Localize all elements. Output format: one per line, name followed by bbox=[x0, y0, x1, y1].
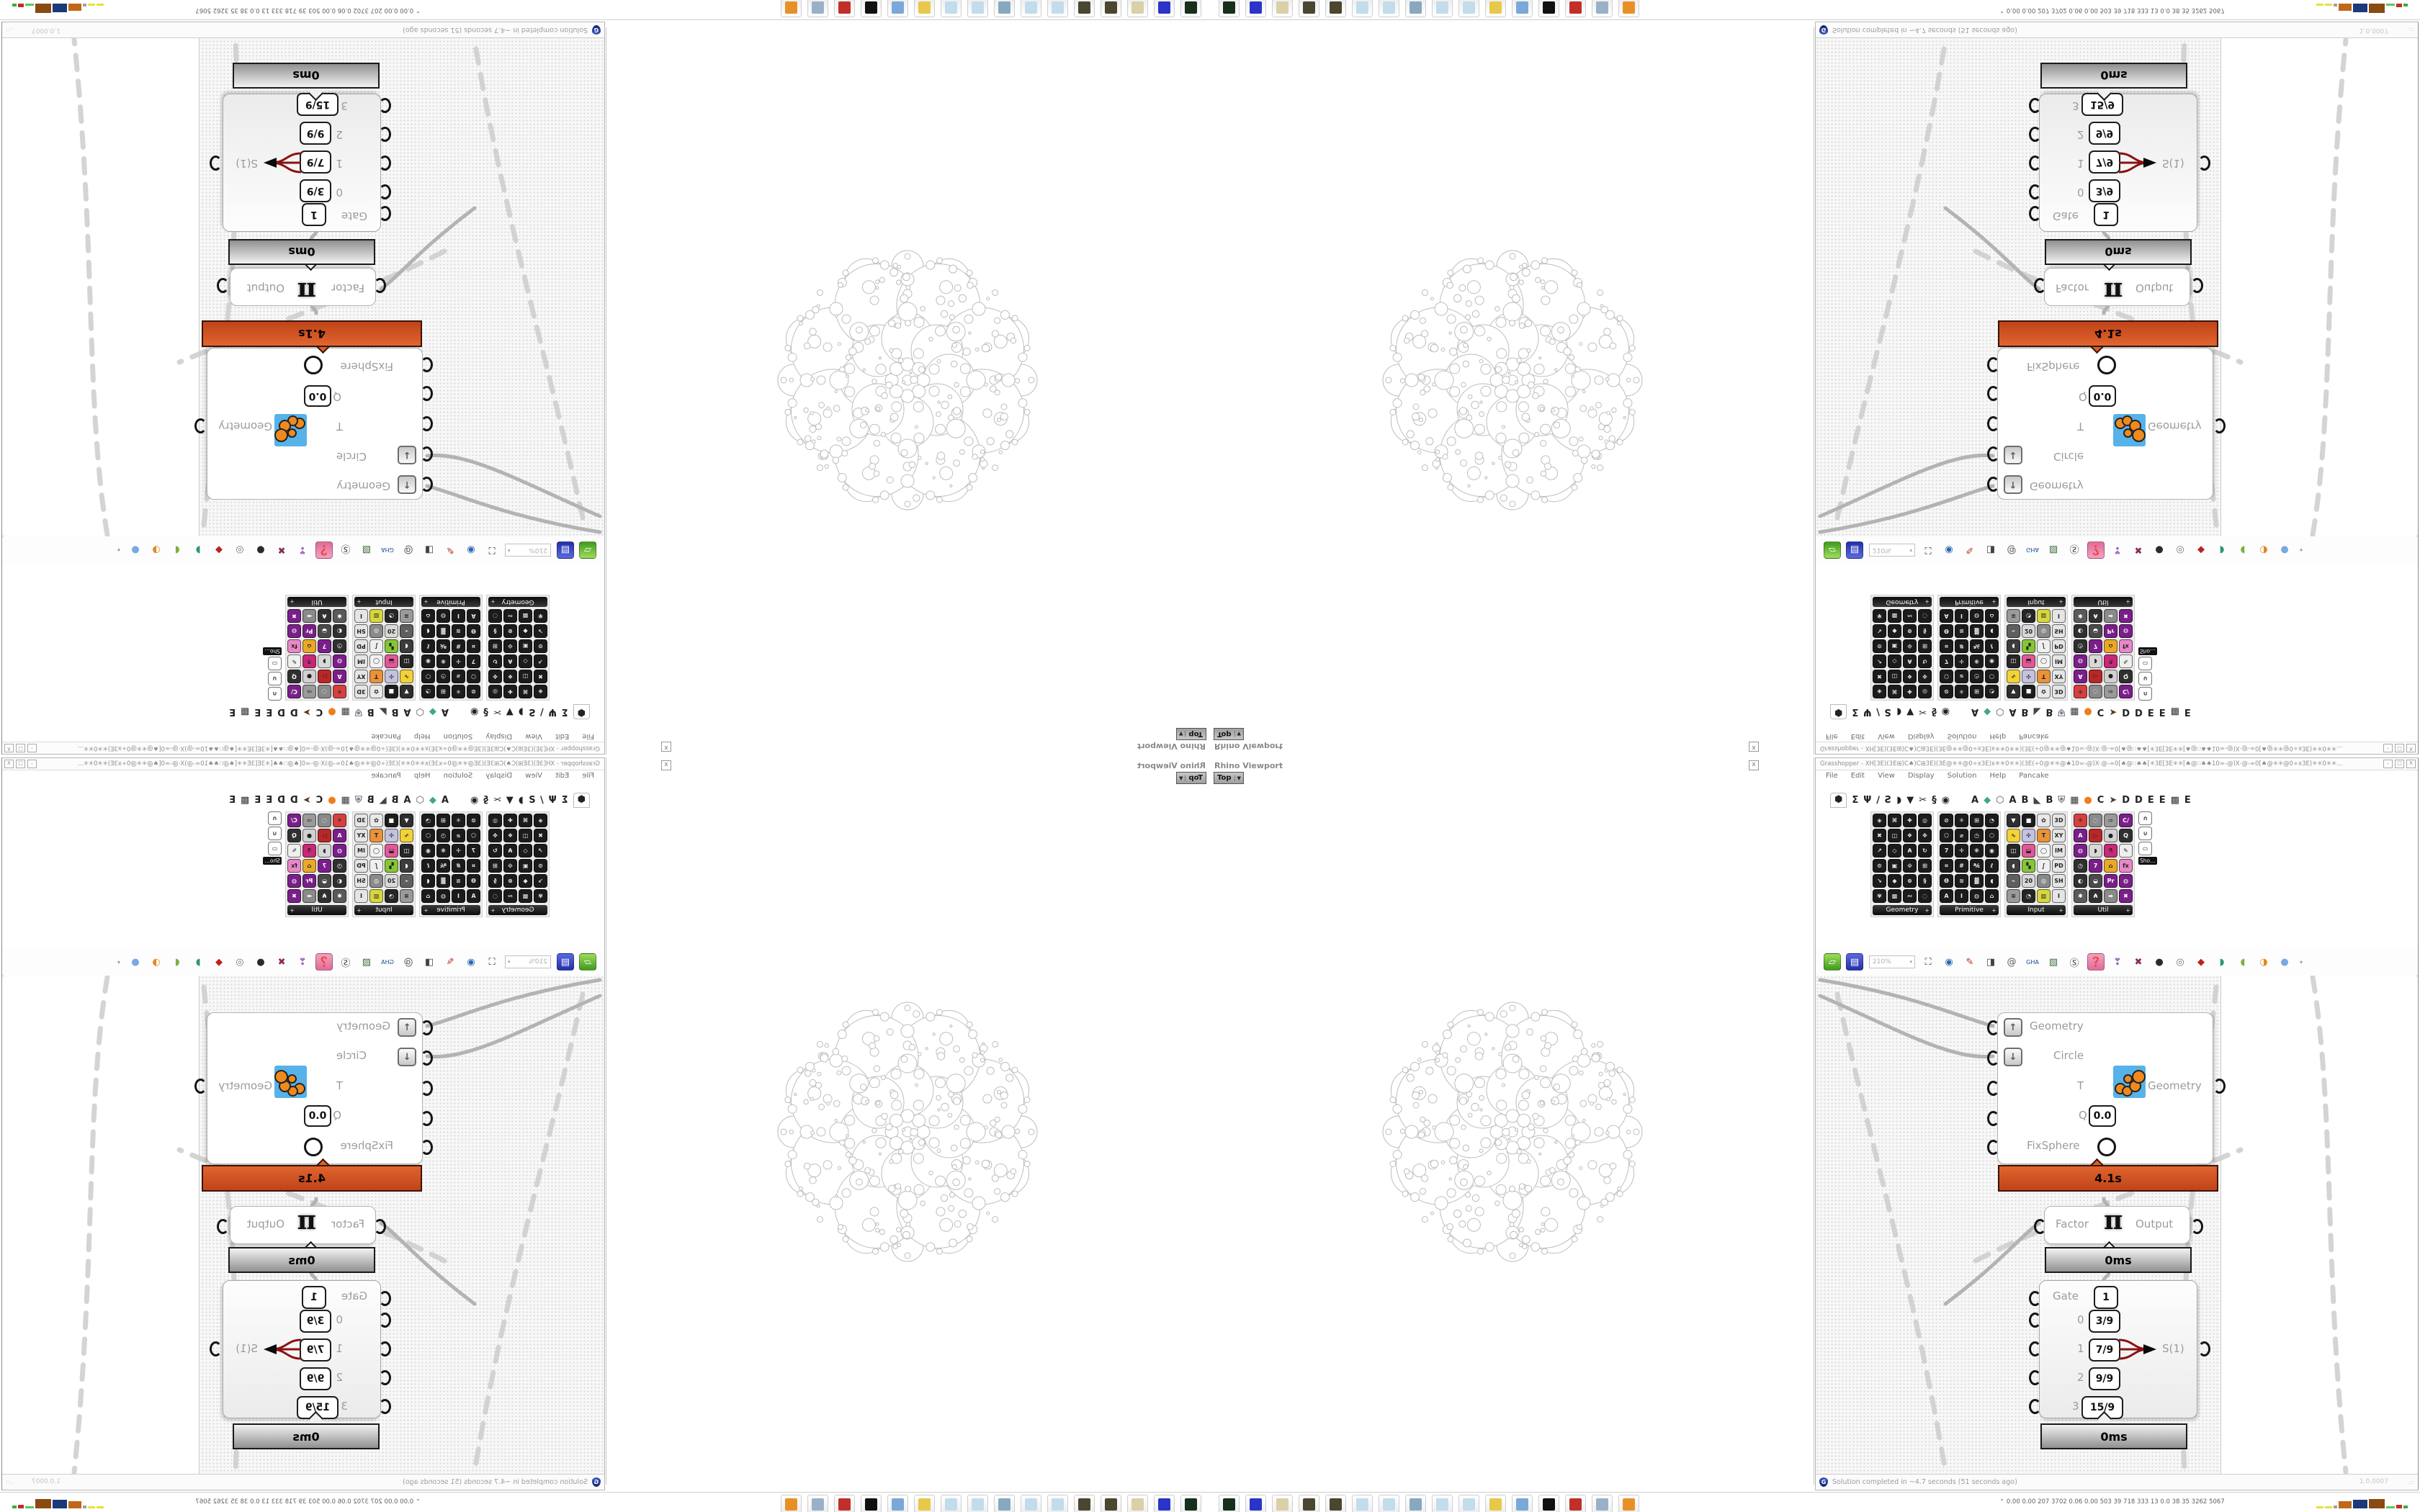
palette-component-icon[interactable]: Ѳ bbox=[467, 624, 480, 638]
ribbon-tab[interactable]: Σ bbox=[562, 795, 568, 806]
ribbon-tab[interactable]: Ƨ bbox=[1885, 707, 1891, 718]
palette-component-icon[interactable]: 3D bbox=[2052, 814, 2066, 827]
palette-component-icon[interactable]: ▣ bbox=[519, 859, 532, 873]
input-grip[interactable] bbox=[379, 184, 391, 199]
ribbon-tab[interactable]: § bbox=[1932, 795, 1937, 806]
s-magnifier-icon[interactable]: Ⓢ bbox=[2066, 954, 2082, 970]
ribbon-tab[interactable]: Σ bbox=[1852, 795, 1858, 806]
palette-component-icon[interactable]: ⚗ bbox=[2104, 844, 2117, 858]
grasshopper-title-bar[interactable]: Grasshopper - XH[3E)(3E⊞)C♠)C⊞3E)(3E@✳✳@… bbox=[2, 742, 604, 754]
taskbar-icon-monitor[interactable] bbox=[994, 0, 1015, 17]
viewport-name-dropdown[interactable]: Top ▼ bbox=[1176, 728, 1206, 740]
ribbon-tab[interactable]: B bbox=[367, 795, 375, 806]
taskbar-icon-red-badge[interactable] bbox=[834, 0, 855, 17]
palette-component-icon[interactable]: ◆ bbox=[519, 874, 532, 888]
palette-component-icon[interactable]: ◫ bbox=[2007, 844, 2020, 858]
palette-component-icon[interactable]: ❋ bbox=[1970, 844, 1984, 858]
ribbon-tab[interactable]: § bbox=[1932, 707, 1937, 718]
grasshopper-canvas[interactable]: ↑ Geometry ↓ Circle T Geometry Q 0.0 Fix… bbox=[4, 976, 604, 1474]
palette-component-icon[interactable]: ⚘ bbox=[333, 814, 346, 827]
taskbar-icon-computer-blue[interactable] bbox=[887, 1495, 908, 1512]
ribbon-tab[interactable]: E bbox=[2184, 707, 2191, 718]
palette-component-icon[interactable]: ❖ bbox=[503, 829, 517, 842]
palette-component-icon[interactable]: ✱ bbox=[2074, 889, 2087, 903]
palette-component-icon[interactable]: ⊞ bbox=[1970, 814, 1984, 827]
palette-component-icon[interactable]: ◯ bbox=[369, 654, 383, 668]
taskbar-icon-notepad-3[interactable] bbox=[1432, 1495, 1453, 1512]
palette-component-icon[interactable]: ◌ bbox=[1918, 889, 1932, 903]
sketch-pen-icon[interactable]: ✎ bbox=[442, 954, 458, 970]
preview-wire-icon[interactable]: ◎ bbox=[232, 542, 248, 558]
palette-group-heading[interactable]: Input+ bbox=[354, 905, 413, 915]
palette-component-icon[interactable]: ≋ bbox=[1955, 624, 1968, 638]
palette-component-icon[interactable]: ✿ bbox=[369, 814, 383, 827]
palette-component-icon[interactable]: ⚘ bbox=[2074, 814, 2087, 827]
palette-component-icon[interactable]: ▚ bbox=[385, 859, 398, 873]
input-grip[interactable] bbox=[1987, 446, 1999, 462]
palette-component-icon[interactable]: ▷ bbox=[2089, 829, 2102, 842]
ribbon-tab[interactable]: Ψ bbox=[1863, 707, 1871, 718]
palette-component-icon[interactable]: ✾ bbox=[1873, 609, 1886, 623]
balloon-icon[interactable]: ❣ bbox=[295, 954, 310, 970]
palette-component-icon[interactable]: ⚘ bbox=[333, 685, 346, 698]
taskbar-icon-browser-orange[interactable] bbox=[781, 0, 802, 17]
palette-component-icon[interactable]: ◷ bbox=[2074, 639, 2087, 653]
palette-component-icon[interactable]: ● bbox=[2104, 829, 2117, 842]
taskbar-icon-red-badge[interactable] bbox=[1565, 1495, 1586, 1512]
viewport-name-dropdown[interactable]: Top ▼ bbox=[1214, 728, 1244, 740]
palette-component-icon[interactable]: ✣ bbox=[2022, 670, 2035, 683]
palette-component-icon[interactable]: ⊘ bbox=[1940, 814, 1953, 827]
palette-component-icon[interactable]: ∾ bbox=[503, 889, 517, 903]
viewport-name-dropdown[interactable]: Top ▼ bbox=[1176, 772, 1206, 784]
taskbar-icon-coin-2[interactable] bbox=[1325, 0, 1346, 17]
palette-component-icon[interactable]: ≡ bbox=[400, 889, 413, 903]
palette-component-icon[interactable]: ∿ bbox=[400, 829, 413, 842]
row1-value[interactable]: 7/9 bbox=[300, 150, 331, 174]
palette-component-icon[interactable]: ▓ bbox=[1970, 624, 1984, 638]
taskbar-icon-arrows-bw[interactable] bbox=[861, 1495, 882, 1512]
palette-component-icon[interactable]: ✿ bbox=[369, 685, 383, 698]
gate-value-field[interactable]: 1 bbox=[2094, 203, 2118, 226]
palette-component-icon[interactable]: ◐ bbox=[333, 874, 346, 888]
palette-component-icon[interactable]: ▥ bbox=[369, 609, 383, 623]
taskbar-icon-notepad-1[interactable] bbox=[1047, 1495, 1068, 1512]
preview-dark-icon[interactable]: ● bbox=[2151, 542, 2167, 558]
menu-solution[interactable]: Solution bbox=[1948, 772, 1977, 780]
palette-component-icon[interactable]: ◎ bbox=[1918, 685, 1932, 698]
ribbon-tab[interactable]: ▩ bbox=[241, 795, 249, 806]
ribbon-tab[interactable]: ⬡ bbox=[416, 707, 424, 718]
palette-component-icon[interactable]: ✥ bbox=[488, 829, 502, 842]
ribbon-tab[interactable]: ✂ bbox=[1919, 795, 1927, 806]
palette-component-icon[interactable]: ◎ bbox=[1918, 814, 1932, 827]
palette-component-icon[interactable]: ◒ bbox=[318, 624, 331, 638]
palette-component-icon[interactable]: ◎ bbox=[488, 814, 502, 827]
palette-component-icon[interactable]: ⬓ bbox=[385, 654, 398, 668]
gate-sums-component[interactable]: Gate 1 0 3/9 1 7/9 S(1) 2 9/9 3 bbox=[223, 1280, 381, 1418]
taskbar-icon-notepad-3[interactable] bbox=[967, 0, 988, 17]
palette-component-icon[interactable]: ◷ bbox=[333, 859, 346, 873]
palette-component-icon[interactable]: ∿ bbox=[400, 670, 413, 683]
input-grip[interactable] bbox=[421, 357, 433, 372]
ribbon-tab[interactable]: ▼ bbox=[1906, 795, 1914, 806]
disable-cross-icon[interactable]: ✖ bbox=[2130, 954, 2146, 970]
palette-component-icon[interactable]: XY bbox=[2052, 670, 2066, 683]
palette-component-icon[interactable]: ◔ bbox=[2022, 889, 2035, 903]
palette-component-icon[interactable]: ∫ bbox=[369, 639, 383, 653]
taskbar-icon-terminal[interactable] bbox=[1180, 1495, 1201, 1512]
menu-edit[interactable]: Edit bbox=[555, 772, 569, 780]
menu-pancake[interactable]: Pancake bbox=[2019, 772, 2048, 780]
palette-component-icon[interactable]: ✖ bbox=[2119, 609, 2133, 623]
row0-value[interactable]: 3/9 bbox=[300, 1310, 331, 1333]
palette-component-icon[interactable]: A bbox=[2074, 670, 2087, 683]
palette-component-icon[interactable]: ◗ bbox=[318, 654, 331, 668]
palette-component-icon[interactable]: ❋ bbox=[436, 844, 450, 858]
taskbar-icon-computer-blue[interactable] bbox=[1512, 0, 1533, 17]
palette-group-heading[interactable]: Primitive+ bbox=[421, 597, 480, 607]
gate-sums-component[interactable]: Gate 1 0 3/9 1 7/9 S(1) 2 9/9 3 bbox=[2039, 1280, 2197, 1418]
palette-component-icon[interactable]: Ѳ bbox=[1940, 874, 1953, 888]
palette-group-heading[interactable]: Geometry+ bbox=[1873, 597, 1932, 607]
gem-green-icon[interactable]: ◗ bbox=[190, 542, 206, 558]
palette-component-icon[interactable]: ◔ bbox=[1985, 814, 1999, 827]
palette-component-icon[interactable]: ▷ bbox=[318, 829, 331, 842]
palette-component-icon[interactable]: ⇨ bbox=[302, 814, 316, 827]
ribbon-tab[interactable]: ◗ bbox=[519, 707, 524, 718]
palette-group-heading[interactable]: Util+ bbox=[287, 905, 346, 915]
ribbon-tab[interactable]: D bbox=[277, 707, 285, 718]
input-grip[interactable] bbox=[2029, 1313, 2041, 1328]
palette-component-icon[interactable]: ◫ bbox=[400, 654, 413, 668]
input-grip[interactable] bbox=[421, 416, 433, 431]
factor-pi-component[interactable]: Factor π Output bbox=[230, 268, 376, 306]
palette-component-icon[interactable]: ◍ bbox=[436, 609, 450, 623]
ribbon-tab[interactable]: D bbox=[277, 795, 285, 806]
palette-component-icon[interactable]: Q bbox=[287, 670, 301, 683]
palette-component-icon[interactable]: PD bbox=[2052, 859, 2066, 873]
menu-help[interactable]: Help bbox=[414, 732, 431, 740]
ribbon-tab[interactable]: ✂ bbox=[493, 707, 501, 718]
input-grip[interactable] bbox=[421, 1050, 433, 1066]
palette-component-icon[interactable]: ◇ bbox=[519, 844, 532, 858]
gem-green-icon[interactable]: ◗ bbox=[190, 954, 206, 970]
palette-component-icon[interactable]: ↘ bbox=[1873, 874, 1886, 888]
gem-green-icon[interactable]: ◗ bbox=[2214, 542, 2230, 558]
taskbar-icon-floppy-64[interactable] bbox=[1245, 0, 1266, 17]
taskbar-icon-terminal[interactable] bbox=[1219, 1495, 1240, 1512]
palette-component-icon[interactable]: 20 bbox=[385, 874, 398, 888]
palette-component-icon[interactable]: ◎ bbox=[488, 685, 502, 698]
palette-component-icon[interactable]: ⊗ bbox=[1903, 874, 1917, 888]
palette-component-icon[interactable]: ❖ bbox=[1903, 670, 1917, 683]
input-grip[interactable] bbox=[421, 386, 433, 401]
palette-component-icon[interactable]: 20 bbox=[2022, 624, 2035, 638]
q-value-field[interactable]: 0.0 bbox=[304, 385, 331, 407]
ribbon-tab[interactable]: E bbox=[266, 795, 272, 806]
palette-component-icon[interactable]: ● bbox=[302, 829, 316, 842]
palette-component-icon[interactable]: ▭ bbox=[268, 657, 282, 670]
palette-component-icon[interactable]: ◇ bbox=[519, 654, 532, 668]
taskbar-icon-script-scroll[interactable] bbox=[1272, 0, 1293, 17]
palette-component-icon[interactable]: ◒ bbox=[2089, 874, 2102, 888]
palette-component-icon[interactable]: IM bbox=[354, 844, 368, 858]
save-file-icon[interactable]: ▤ bbox=[557, 541, 574, 559]
palette-component-icon[interactable]: ⌘ bbox=[519, 685, 532, 698]
palette-component-icon[interactable]: ⌂ bbox=[302, 639, 316, 653]
gha-loader-icon[interactable]: GHA bbox=[380, 954, 395, 970]
input-grip[interactable] bbox=[421, 1140, 433, 1155]
input-grip[interactable] bbox=[1987, 1140, 1999, 1155]
ribbon-tab[interactable]: D bbox=[2135, 707, 2143, 718]
output-grip[interactable] bbox=[2191, 1219, 2203, 1234]
input-grip[interactable] bbox=[1987, 1020, 1999, 1035]
palette-component-icon[interactable]: ◖ bbox=[1985, 874, 1999, 888]
palette-component-icon[interactable]: ◯ bbox=[2037, 844, 2051, 858]
ribbon-tab[interactable]: C bbox=[316, 707, 323, 718]
palette-component-icon[interactable]: ≋ bbox=[452, 624, 465, 638]
palette-component-icon[interactable]: 7 bbox=[1940, 654, 1953, 668]
palette-component-icon[interactable]: ⌁ bbox=[2007, 624, 2020, 638]
palette-component-icon[interactable]: Ⅰ bbox=[2052, 609, 2066, 623]
taskbar-icon-terminal[interactable] bbox=[1180, 0, 1201, 17]
palette-component-icon[interactable]: ◇ bbox=[1888, 654, 1901, 668]
palette-component-icon[interactable]: ▩ bbox=[519, 889, 532, 903]
grasshopper-canvas[interactable]: ↑ Geometry ↓ Circle T Geometry Q 0.0 Fix… bbox=[4, 38, 604, 536]
ribbon-tab[interactable]: Ψ bbox=[549, 795, 557, 806]
palette-component-icon[interactable]: C/ bbox=[287, 814, 301, 827]
palette-component-icon[interactable]: ⌀ bbox=[1955, 670, 1968, 683]
input-grip[interactable] bbox=[379, 1291, 391, 1306]
palette-component-icon[interactable]: ⌁ bbox=[400, 624, 413, 638]
palette-component-icon[interactable]: 3D bbox=[2052, 685, 2066, 698]
taskbar-icon-notepad-2[interactable] bbox=[1379, 1495, 1399, 1512]
palette-component-icon[interactable]: ◗ bbox=[318, 844, 331, 858]
taskbar-icon-script-scroll[interactable] bbox=[1272, 1495, 1293, 1512]
fixsphere-component[interactable]: ↑ Geometry ↓ Circle T Geometry Q 0.0 Fix… bbox=[207, 1012, 423, 1164]
palette-component-icon[interactable]: ◉ bbox=[1985, 654, 1999, 668]
palette-component-icon[interactable]: PD bbox=[354, 859, 368, 873]
input-grip[interactable] bbox=[421, 446, 433, 462]
palette-component-icon[interactable]: ✛ bbox=[1955, 844, 1968, 858]
palette-component-icon[interactable]: ◐ bbox=[2074, 874, 2087, 888]
palette-component-icon[interactable]: ↘ bbox=[534, 624, 547, 638]
taskbar-icon-computer-blue[interactable] bbox=[1512, 1495, 1533, 1512]
gem-red-icon[interactable]: ◆ bbox=[2193, 954, 2209, 970]
palette-component-icon[interactable]: ▭ bbox=[2138, 657, 2152, 670]
palette-component-icon[interactable]: ✿ bbox=[2037, 685, 2051, 698]
maximize-button[interactable]: □ bbox=[16, 744, 25, 752]
input-grip[interactable] bbox=[379, 1370, 391, 1385]
s-magnifier-icon[interactable]: Ⓢ bbox=[338, 542, 354, 558]
ribbon-tab[interactable]: Σ bbox=[1852, 707, 1858, 718]
palette-component-icon[interactable]: ◔ bbox=[385, 889, 398, 903]
palette-component-icon[interactable]: 7 bbox=[2089, 639, 2102, 653]
palette-component-icon[interactable]: ℀ bbox=[436, 639, 450, 653]
palette-component-icon[interactable]: ⌗ bbox=[467, 639, 480, 653]
taskbar-icon-script-scroll[interactable] bbox=[1127, 1495, 1148, 1512]
palette-component-icon[interactable]: ✳ bbox=[452, 685, 465, 698]
gem-leaf-icon[interactable]: ◖ bbox=[2235, 542, 2251, 558]
palette-component-icon[interactable]: A bbox=[1940, 889, 1953, 903]
ribbon-tab[interactable]: § bbox=[483, 795, 488, 806]
palette-component-icon[interactable]: Ⅰ bbox=[1955, 889, 1968, 903]
menu-help[interactable]: Help bbox=[1989, 732, 2006, 740]
palette-component-icon[interactable]: ∪ bbox=[2138, 672, 2152, 685]
toolbar-more-arrow[interactable]: ▾ bbox=[2300, 959, 2303, 966]
ribbon-tab[interactable]: ∕ bbox=[540, 795, 544, 806]
palette-component-icon[interactable]: ▩ bbox=[1888, 609, 1901, 623]
palette-component-icon[interactable]: Q bbox=[2119, 670, 2133, 683]
ribbon-tab[interactable]: E bbox=[254, 707, 261, 718]
palette-component-icon[interactable]: 3D bbox=[354, 814, 368, 827]
q-value-field[interactable]: 0.0 bbox=[304, 1105, 331, 1127]
output-grip[interactable] bbox=[194, 1079, 207, 1094]
taskbar-icon-notepad-2[interactable] bbox=[1379, 0, 1399, 17]
gate-value-field[interactable]: 1 bbox=[302, 1286, 326, 1309]
input-grip[interactable] bbox=[1987, 1081, 1999, 1096]
palette-component-icon[interactable]: ₳ bbox=[503, 654, 517, 668]
ribbon-tab[interactable]: ⬢ bbox=[1830, 793, 1847, 808]
ribbon-tab[interactable]: ∕ bbox=[1876, 795, 1880, 806]
palette-component-icon[interactable]: ◫ bbox=[2007, 654, 2020, 668]
rhino-close-button[interactable]: x bbox=[661, 742, 671, 752]
taskbar-icon-coin-2[interactable] bbox=[1325, 1495, 1346, 1512]
palette-component-icon[interactable]: ◍ bbox=[436, 889, 450, 903]
palette-component-icon[interactable]: ◍ bbox=[287, 624, 301, 638]
palette-component-icon[interactable]: ⬡ bbox=[1985, 670, 1999, 683]
ribbon-tab[interactable]: A bbox=[2009, 795, 2016, 806]
palette-component-icon[interactable]: ◍ bbox=[2074, 654, 2087, 668]
palette-component-icon[interactable]: ⬠ bbox=[467, 670, 480, 683]
input-grip[interactable] bbox=[379, 1313, 391, 1328]
palette-component-icon[interactable]: T bbox=[2037, 829, 2051, 842]
palette-component-icon[interactable]: ◒ bbox=[318, 874, 331, 888]
taskbar-icon-calculator[interactable] bbox=[807, 1495, 828, 1512]
palette-component-icon[interactable]: Ⅰ bbox=[2052, 889, 2066, 903]
palette-component-icon[interactable]: ◫ bbox=[519, 670, 532, 683]
ribbon-tab[interactable]: ◣ bbox=[2033, 795, 2040, 806]
pink-box-icon[interactable]: ❓ bbox=[315, 953, 333, 971]
ribbon-tab[interactable]: ▦ bbox=[2070, 795, 2079, 806]
row2-value[interactable]: 9/9 bbox=[2089, 122, 2120, 145]
q-value-field[interactable]: 0.0 bbox=[2089, 385, 2116, 407]
palette-component-icon[interactable]: SH bbox=[2052, 624, 2066, 638]
palette-component-icon[interactable]: ✣ bbox=[385, 829, 398, 842]
menu-file[interactable]: File bbox=[582, 772, 594, 780]
rhino-close-button[interactable]: x bbox=[1749, 742, 1759, 752]
map-search-icon[interactable]: ▧ bbox=[2045, 542, 2061, 558]
minimize-button[interactable]: – bbox=[2383, 744, 2393, 752]
palette-component-icon[interactable]: 7 bbox=[2089, 859, 2102, 873]
palette-component-icon[interactable]: ⊙ bbox=[534, 639, 547, 653]
palette-group-heading[interactable]: Primitive+ bbox=[1940, 905, 1999, 915]
palette-component-icon[interactable]: Pr bbox=[2104, 624, 2117, 638]
gem-red-icon[interactable]: ◆ bbox=[211, 954, 227, 970]
palette-component-icon[interactable]: ◖ bbox=[1985, 624, 1999, 638]
palette-component-icon[interactable]: ⬓ bbox=[385, 844, 398, 858]
ribbon-tab[interactable]: E bbox=[266, 707, 272, 718]
preview-dark-icon[interactable]: ● bbox=[2151, 954, 2167, 970]
output-grip[interactable] bbox=[210, 156, 222, 171]
menu-file[interactable]: File bbox=[582, 732, 594, 740]
grasshopper-canvas[interactable]: ↑ Geometry ↓ Circle T Geometry Q 0.0 Fix… bbox=[1816, 38, 2416, 536]
palette-component-icon[interactable]: 20 bbox=[2022, 874, 2035, 888]
palette-component-icon[interactable]: ℀ bbox=[1970, 859, 1984, 873]
palette-component-icon[interactable]: ↘ bbox=[534, 874, 547, 888]
palette-component-icon[interactable]: ∫ bbox=[2037, 859, 2051, 873]
close-button[interactable]: X bbox=[2406, 760, 2416, 768]
menu-help[interactable]: Help bbox=[414, 772, 431, 780]
ribbon-tab[interactable]: Ƨ bbox=[529, 795, 535, 806]
palette-component-icon[interactable]: ◖ bbox=[2007, 859, 2020, 873]
output-grip[interactable] bbox=[217, 1219, 229, 1234]
gem-orange-icon[interactable]: ◑ bbox=[2256, 542, 2272, 558]
ribbon-tab[interactable]: ◆ bbox=[1984, 795, 1991, 806]
gem-orange-icon[interactable]: ◑ bbox=[2256, 954, 2272, 970]
palette-component-icon[interactable]: ∩ bbox=[2138, 687, 2152, 701]
output-grip[interactable] bbox=[217, 278, 229, 293]
palette-component-icon[interactable]: § bbox=[1918, 874, 1932, 888]
palette-component-icon[interactable]: ⌂ bbox=[1985, 609, 1999, 623]
maximize-button[interactable]: □ bbox=[2395, 744, 2404, 752]
palette-component-icon[interactable]: ℓ bbox=[1985, 639, 1999, 653]
taskbar-icon-monitor[interactable] bbox=[1405, 1495, 1426, 1512]
palette-component-icon[interactable]: ✣ bbox=[2022, 829, 2035, 842]
factor-pi-component[interactable]: Factor π Output bbox=[2044, 1206, 2190, 1244]
palette-component-icon[interactable]: ▣ bbox=[519, 639, 532, 653]
ribbon-tab[interactable]: ▼ bbox=[506, 707, 514, 718]
ribbon-tab[interactable]: B bbox=[367, 707, 375, 718]
palette-component-icon[interactable]: ◔ bbox=[421, 685, 435, 698]
gha-loader-icon[interactable]: GHA bbox=[380, 542, 395, 558]
palette-component-icon[interactable]: ⌗ bbox=[1940, 639, 1953, 653]
ribbon-tab[interactable]: ⬢ bbox=[573, 705, 590, 720]
gem-blue-icon[interactable]: ● bbox=[127, 542, 143, 558]
palette-component-icon[interactable]: ✎ bbox=[287, 654, 301, 668]
taskbar-icon-folder-yellow[interactable] bbox=[1485, 1495, 1506, 1512]
ribbon-tab[interactable]: ● bbox=[2084, 795, 2092, 806]
palette-component-icon[interactable]: ∾ bbox=[1903, 609, 1917, 623]
palette-component-icon[interactable]: ✖ bbox=[1873, 829, 1886, 842]
palette-component-icon[interactable]: Ѳ bbox=[467, 874, 480, 888]
palette-component-icon[interactable]: ■ bbox=[2022, 814, 2035, 827]
rhino-close-button[interactable]: x bbox=[661, 760, 671, 770]
down-arrow-button[interactable]: ↓ bbox=[398, 446, 416, 464]
taskbar-icon-notepad-4[interactable] bbox=[1458, 0, 1479, 17]
input-grip[interactable] bbox=[379, 127, 391, 142]
palette-component-icon[interactable]: ∾ bbox=[1903, 889, 1917, 903]
palette-component-icon[interactable]: ❖ bbox=[1903, 829, 1917, 842]
palette-component-icon[interactable]: ⊘ bbox=[467, 814, 480, 827]
palette-component-icon[interactable]: ⇨ bbox=[2104, 814, 2117, 827]
palette-group-heading[interactable]: Util+ bbox=[2074, 597, 2133, 607]
palette-component-icon[interactable]: ↗ bbox=[534, 844, 547, 858]
menu-view[interactable]: View bbox=[525, 772, 542, 780]
ribbon-tab[interactable]: Σ bbox=[562, 707, 568, 718]
preview-eye-icon[interactable]: ◉ bbox=[463, 954, 479, 970]
q-value-field[interactable]: 0.0 bbox=[2089, 1105, 2116, 1127]
palette-component-icon[interactable]: ⟐ bbox=[503, 639, 517, 653]
ribbon-tab[interactable]: B bbox=[392, 707, 399, 718]
palette-component-icon[interactable]: XY bbox=[354, 670, 368, 683]
ribbon-tab[interactable]: E bbox=[2159, 707, 2166, 718]
input-grip[interactable] bbox=[379, 1341, 391, 1356]
menu-solution[interactable]: Solution bbox=[444, 732, 473, 740]
palette-component-icon[interactable]: ◷ bbox=[1970, 829, 1984, 842]
fixsphere-component[interactable]: ↑ Geometry ↓ Circle T Geometry Q 0.0 Fix… bbox=[1997, 1012, 2213, 1164]
